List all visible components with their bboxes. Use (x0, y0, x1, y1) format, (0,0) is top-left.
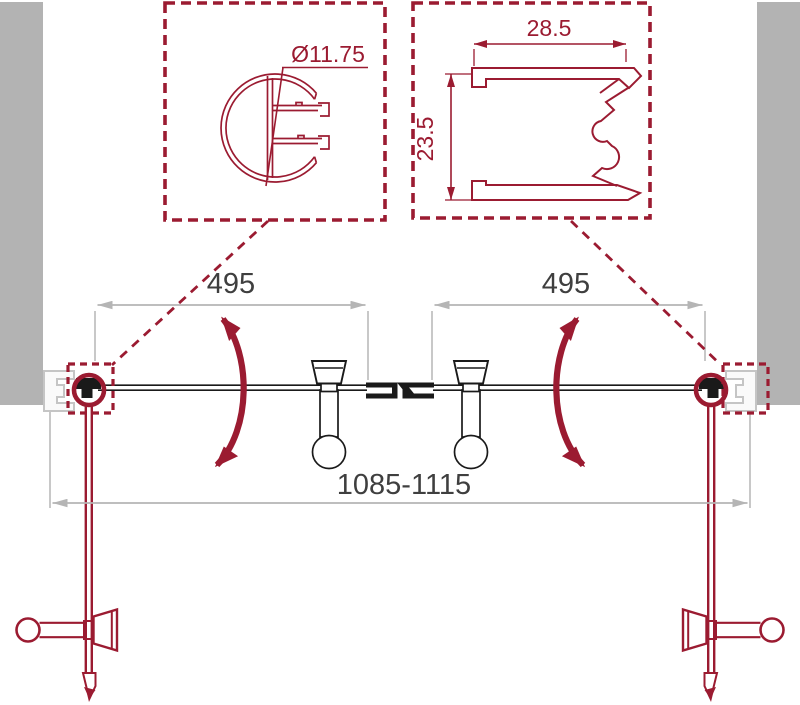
profile-arc-join-top (315, 93, 317, 99)
wall-profile-height-label: 23.5 (412, 117, 438, 162)
overall-width-label: 1085-1115 (337, 469, 471, 501)
detail-box-border-left (165, 3, 385, 220)
profile-mount-column (592, 88, 628, 186)
profile-inner-arc (226, 79, 315, 177)
diagram-stage: 1085-1115 495 495 Ø11.75 (0, 0, 800, 705)
profile-column-inner-edge (600, 79, 619, 93)
right-assembly-mirrored (403, 2, 800, 699)
shower-door-diagram: 1085-1115 495 495 Ø11.75 (0, 0, 800, 705)
wall-profile-width-label: 28.5 (527, 15, 572, 41)
profile-top-flange (472, 68, 641, 88)
left-door-width-label: 495 (207, 268, 255, 300)
diameter-leader-diagonal (266, 68, 283, 187)
right-door-width-label: 495 (542, 268, 590, 300)
right-assembly (403, 2, 800, 699)
detail-box-knob-profile: Ø11.75 (165, 3, 385, 220)
profile-bottom-flange (472, 181, 640, 200)
left-assembly (0, 2, 398, 699)
wall-profile-drawing (472, 68, 641, 200)
right-detail-leader (571, 221, 721, 365)
detail-box-wall-profile: 28.5 23.5 (412, 3, 650, 218)
profile-arc-join-bottom (315, 157, 317, 163)
knob-diameter-label: Ø11.75 (291, 41, 365, 67)
